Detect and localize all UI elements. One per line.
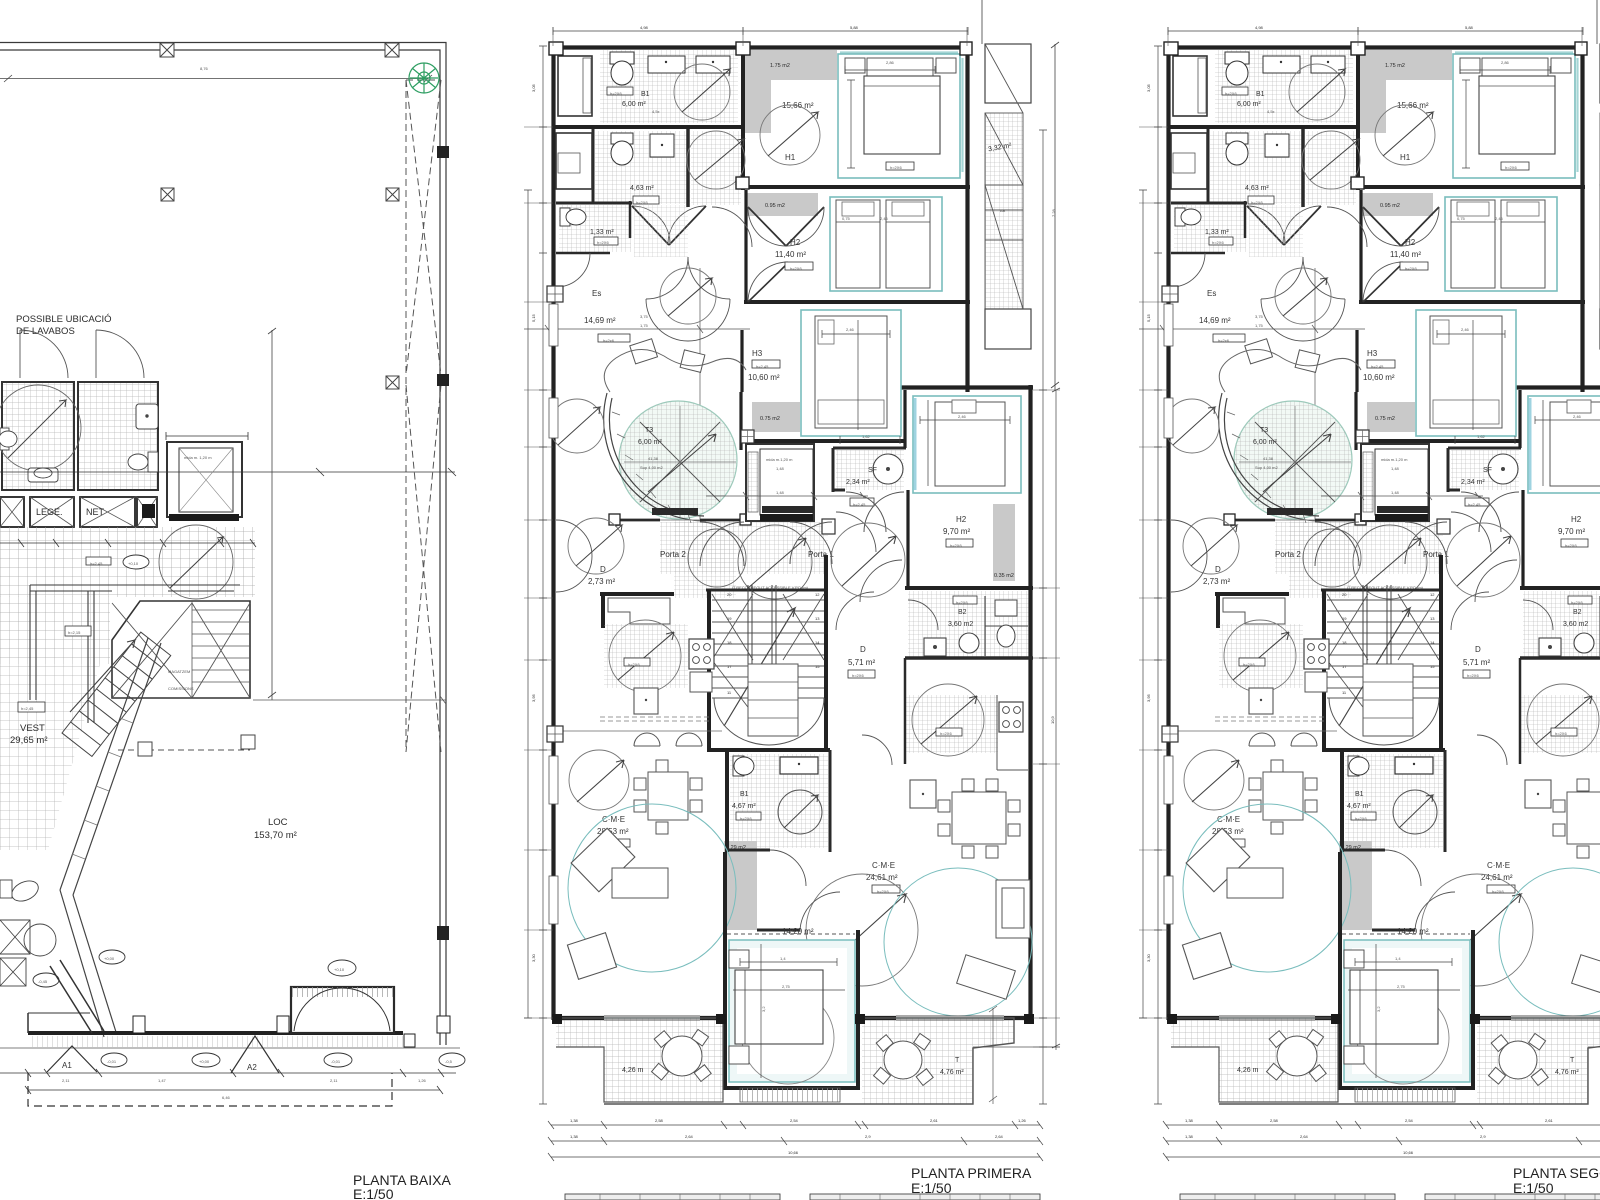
svg-text:3,2: 3,2	[761, 1006, 766, 1012]
svg-text:Sup 4,00 m2: Sup 4,00 m2	[640, 465, 663, 470]
svg-text:10,60 m²: 10,60 m²	[748, 373, 780, 382]
svg-text:0,75: 0,75	[842, 216, 851, 221]
svg-text:SF: SF	[868, 467, 877, 474]
svg-text:h=2X6: h=2X6	[852, 673, 864, 678]
svg-text:T: T	[955, 1057, 960, 1064]
svg-text:D: D	[860, 645, 866, 654]
svg-text:LEGE.: LEGE.	[36, 507, 63, 517]
svg-text:1,47: 1,47	[158, 1078, 167, 1083]
svg-text:18: 18	[727, 640, 732, 645]
svg-text:Es: Es	[592, 289, 601, 298]
svg-text:10,66: 10,66	[788, 1150, 799, 1155]
svg-text:E:1/50: E:1/50	[1513, 1180, 1554, 1196]
svg-text:2,61: 2,61	[930, 1118, 939, 1123]
svg-text:h=2X6: h=2X6	[877, 889, 889, 894]
svg-text:5,71 m²: 5,71 m²	[848, 658, 875, 667]
svg-text:2,86: 2,86	[886, 60, 895, 65]
svg-text:4,63 m²: 4,63 m²	[630, 185, 654, 192]
svg-text:AB: AB	[1000, 208, 1006, 213]
svg-text:h=2,45: h=2,45	[90, 561, 103, 566]
svg-text:h=2,45: h=2,45	[21, 706, 34, 711]
svg-text:5,15: 5,15	[531, 313, 536, 322]
svg-text:Porta 2: Porta 2	[660, 550, 686, 559]
svg-text:h=2X6: h=2X6	[956, 600, 968, 605]
svg-text:11,40 m²: 11,40 m²	[775, 250, 806, 259]
svg-text:h=2,15: h=2,15	[68, 630, 81, 635]
svg-text:PLANTA PRIMERA: PLANTA PRIMERA	[911, 1165, 1032, 1181]
svg-text:-0,01: -0,01	[331, 1059, 341, 1064]
svg-text:2,11: 2,11	[330, 1078, 338, 1083]
svg-text:2,34 m²: 2,34 m²	[846, 479, 870, 486]
svg-text:h=2x6: h=2x6	[603, 338, 615, 343]
svg-text:2,64: 2,64	[685, 1134, 694, 1139]
svg-text:29,65 m²: 29,65 m²	[10, 735, 48, 746]
svg-text:+0,00: +0,00	[199, 1059, 210, 1064]
svg-text:2,46: 2,46	[880, 216, 889, 221]
svg-text:-0,5: -0,5	[445, 1059, 453, 1064]
svg-text:T3: T3	[645, 427, 653, 434]
svg-text:14,20 m²: 14,20 m²	[782, 927, 814, 936]
svg-text:-0,01: -0,01	[107, 1059, 117, 1064]
svg-text:1,62: 1,62	[862, 434, 871, 439]
svg-text:3,75: 3,75	[640, 314, 649, 319]
svg-text:B1: B1	[740, 791, 749, 798]
svg-text:1,48: 1,48	[776, 466, 785, 471]
svg-text:3,60 m2: 3,60 m2	[948, 621, 973, 628]
svg-text:2,9: 2,9	[865, 1134, 871, 1139]
svg-text:5,88: 5,88	[850, 25, 859, 30]
svg-text:1,4: 1,4	[780, 956, 786, 961]
svg-text:2,64: 2,64	[995, 1134, 1004, 1139]
svg-text:VEST: VEST	[20, 723, 45, 734]
svg-text:A2: A2	[247, 1063, 257, 1072]
svg-text:-0,45: -0,45	[38, 979, 48, 984]
svg-text:1,26: 1,26	[1018, 1118, 1027, 1123]
svg-text:4,5x: 4,5x	[652, 109, 660, 114]
svg-text:h=2X6: h=2X6	[740, 816, 752, 821]
svg-text:2,54: 2,54	[790, 1118, 799, 1123]
svg-text:3,95: 3,95	[531, 693, 536, 702]
svg-text:mida m. 1,20 m: mida m. 1,20 m	[184, 455, 212, 460]
svg-text:PLANTA SEGONA: PLANTA SEGONA	[1513, 1165, 1600, 1181]
svg-text:H2: H2	[956, 515, 967, 524]
svg-text:POSSIBLE UBICACIÓ: POSSIBLE UBICACIÓ	[16, 314, 112, 325]
svg-text:E:1/50: E:1/50	[911, 1180, 952, 1196]
svg-text:2,75: 2,75	[782, 984, 791, 989]
svg-text:20: 20	[727, 592, 732, 597]
svg-text:0.95 m2: 0.95 m2	[765, 203, 785, 209]
svg-text:14: 14	[815, 640, 820, 645]
svg-text:H1: H1	[785, 153, 796, 162]
svg-text:h=2X6: h=2X6	[940, 731, 952, 736]
svg-text:h=2X6: h=2X6	[628, 662, 640, 667]
svg-text:H3: H3	[752, 349, 763, 358]
svg-text:12: 12	[815, 592, 820, 597]
svg-text:4,67 m²: 4,67 m²	[732, 803, 756, 810]
svg-text:2,11: 2,11	[62, 1078, 70, 1083]
svg-text:h=2,45: h=2,45	[756, 364, 769, 369]
svg-text:+0,10: +0,10	[334, 967, 345, 972]
svg-text:6,46: 6,46	[222, 1095, 231, 1100]
svg-text:41,38: 41,38	[648, 456, 659, 461]
svg-text:7,28: 7,28	[1051, 208, 1056, 217]
svg-text:NET: NET	[86, 507, 105, 517]
svg-text:h=2X6: h=2X6	[597, 240, 609, 245]
svg-text:2,46: 2,46	[958, 414, 967, 419]
svg-text:2,58: 2,58	[655, 1118, 664, 1123]
svg-text:B2: B2	[958, 609, 967, 616]
svg-text:mida m.1,20 m: mida m.1,20 m	[766, 457, 793, 462]
svg-text:+0,00: +0,00	[104, 956, 115, 961]
svg-text:3,30: 3,30	[531, 953, 536, 962]
svg-text:13: 13	[815, 616, 820, 621]
svg-text:2,73 m²: 2,73 m²	[588, 577, 615, 586]
svg-text:4,98: 4,98	[640, 25, 649, 30]
svg-text:h=2,45: h=2,45	[853, 502, 866, 507]
svg-text:E:1/50: E:1/50	[353, 1186, 394, 1200]
svg-text:1,33 m²: 1,33 m²	[590, 229, 614, 236]
svg-text:C·M·E: C·M·E	[872, 861, 895, 870]
svg-text:COMISSIONS: COMISSIONS	[168, 686, 194, 691]
svg-text:19: 19	[727, 616, 732, 621]
svg-text:9,70 m²: 9,70 m²	[943, 527, 970, 536]
svg-text:h=2X6: h=2X6	[950, 543, 962, 548]
svg-text:H2: H2	[790, 238, 801, 247]
svg-text:C·M·E: C·M·E	[602, 815, 625, 824]
svg-text:4,76 m²: 4,76 m²	[940, 1069, 964, 1076]
svg-text:1,75: 1,75	[640, 323, 649, 328]
svg-text:h=2X6: h=2X6	[890, 165, 902, 170]
svg-text:6,00 m²: 6,00 m²	[622, 101, 646, 108]
svg-text:1,38: 1,38	[570, 1118, 579, 1123]
svg-text:1,38: 1,38	[570, 1134, 579, 1139]
svg-text:0.75 m2: 0.75 m2	[760, 416, 780, 422]
svg-text:D: D	[600, 565, 606, 574]
svg-text:1.75 m2: 1.75 m2	[770, 63, 790, 69]
svg-text:2,46: 2,46	[846, 327, 855, 332]
svg-text:LOC: LOC	[268, 817, 288, 828]
svg-text:153,70 m²: 153,70 m²	[254, 830, 297, 841]
svg-text:MAGATZEM: MAGATZEM	[168, 669, 190, 674]
svg-text:10,9: 10,9	[1050, 715, 1055, 724]
svg-text:1,26: 1,26	[418, 1078, 427, 1083]
svg-text:0.35 m2: 0.35 m2	[994, 573, 1014, 579]
svg-text:14,69 m²: 14,69 m²	[584, 316, 616, 325]
svg-text:+0,10: +0,10	[128, 561, 139, 566]
svg-text:h=2X6: h=2X6	[636, 200, 648, 205]
svg-text:6,00 m²: 6,00 m²	[638, 439, 662, 446]
svg-text:15: 15	[815, 664, 820, 669]
svg-text:h=2X6: h=2X6	[610, 91, 622, 96]
svg-text:3,05: 3,05	[531, 83, 536, 92]
svg-text:1,48: 1,48	[776, 490, 785, 495]
svg-text:4,26 m: 4,26 m	[622, 1067, 644, 1074]
svg-text:17: 17	[727, 664, 732, 669]
svg-text:B1: B1	[641, 91, 650, 98]
svg-text:H1: H1	[790, 928, 796, 933]
svg-text:A1: A1	[62, 1061, 72, 1070]
svg-text:h=2X6: h=2X6	[790, 266, 802, 271]
svg-text:DE LAVABOS: DE LAVABOS	[16, 326, 75, 337]
svg-text:8,76: 8,76	[200, 66, 209, 71]
